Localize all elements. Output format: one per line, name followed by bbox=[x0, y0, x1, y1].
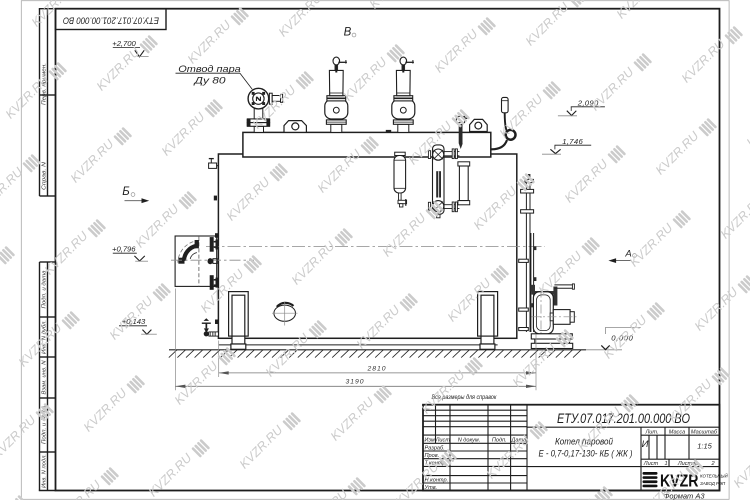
svg-text:Лист: Лист bbox=[643, 461, 659, 467]
svg-text:Масштаб: Масштаб bbox=[691, 429, 718, 435]
svg-text:Пров.: Пров. bbox=[425, 453, 440, 459]
svg-text:Разраб.: Разраб. bbox=[425, 445, 445, 451]
svg-text:Изм: Изм bbox=[424, 438, 435, 444]
svg-text:1: 1 bbox=[664, 461, 667, 467]
svg-text:Справ. N: Справ. N bbox=[42, 162, 48, 190]
svg-text:Б: Б bbox=[122, 186, 130, 198]
svg-text:КОТЕЛЬНЫЙ: КОТЕЛЬНЫЙ bbox=[700, 474, 728, 479]
svg-text:N докум.: N докум. bbox=[458, 438, 481, 444]
svg-text:Инв. N подл.: Инв. N подл. bbox=[42, 454, 48, 488]
svg-text:Масса: Масса bbox=[669, 429, 686, 435]
svg-text:В: В bbox=[344, 27, 352, 39]
svg-text:1:15: 1:15 bbox=[697, 442, 712, 451]
svg-text:Отвод пара: Отвод пара bbox=[178, 63, 241, 74]
svg-text:Ду 80: Ду 80 bbox=[193, 74, 226, 85]
svg-text:ЕТУ.07.017.201.00.000 ВО: ЕТУ.07.017.201.00.000 ВО bbox=[63, 15, 159, 25]
svg-text:Подп. и дата: Подп. и дата bbox=[42, 270, 48, 308]
svg-text:1,746: 1,746 bbox=[562, 137, 583, 146]
svg-text:ЗАВОД РЭП: ЗАВОД РЭП bbox=[700, 481, 726, 486]
svg-text:Утв.: Утв. bbox=[424, 485, 438, 491]
svg-text:Взам. инв. N: Взам. инв. N bbox=[42, 360, 48, 394]
svg-text:+0,796: +0,796 bbox=[112, 245, 136, 254]
svg-text:2810: 2810 bbox=[367, 365, 386, 372]
svg-text:Подп.: Подп. bbox=[492, 438, 507, 444]
svg-text:Лит.: Лит. bbox=[644, 429, 658, 435]
svg-text:3190: 3190 bbox=[346, 379, 364, 386]
svg-text:И: И bbox=[642, 439, 649, 450]
svg-text:Лист: Лист bbox=[435, 438, 451, 444]
